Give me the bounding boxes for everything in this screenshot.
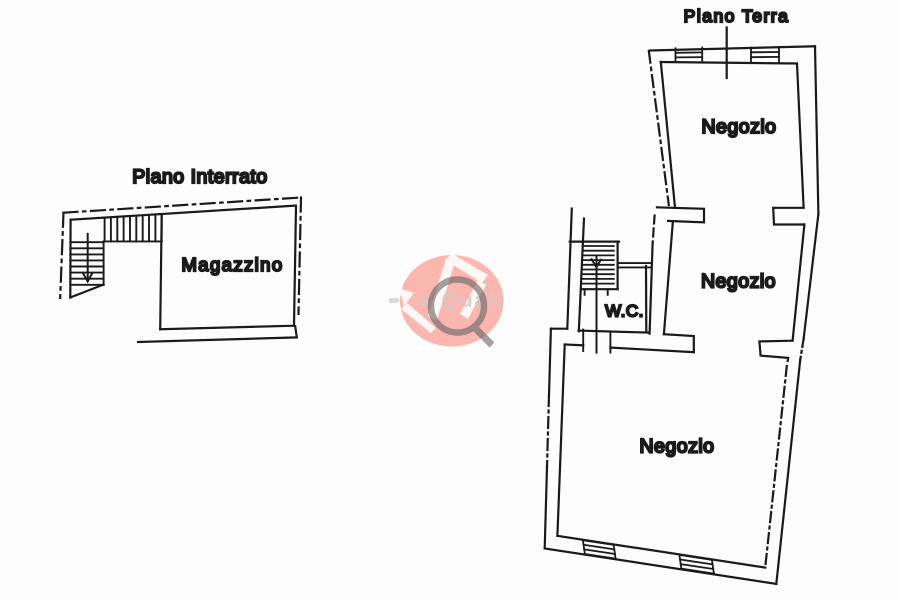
- svg-text:Negozio: Negozio: [639, 436, 714, 458]
- svg-text:Negozio: Negozio: [701, 271, 776, 293]
- svg-text:Piano Interrato: Piano Interrato: [132, 166, 267, 188]
- svg-text:Negozio: Negozio: [701, 116, 776, 138]
- svg-text:Magazzino: Magazzino: [181, 254, 283, 275]
- svg-text:Piano Terra: Piano Terra: [684, 6, 790, 26]
- svg-text:W.C.: W.C.: [605, 302, 644, 321]
